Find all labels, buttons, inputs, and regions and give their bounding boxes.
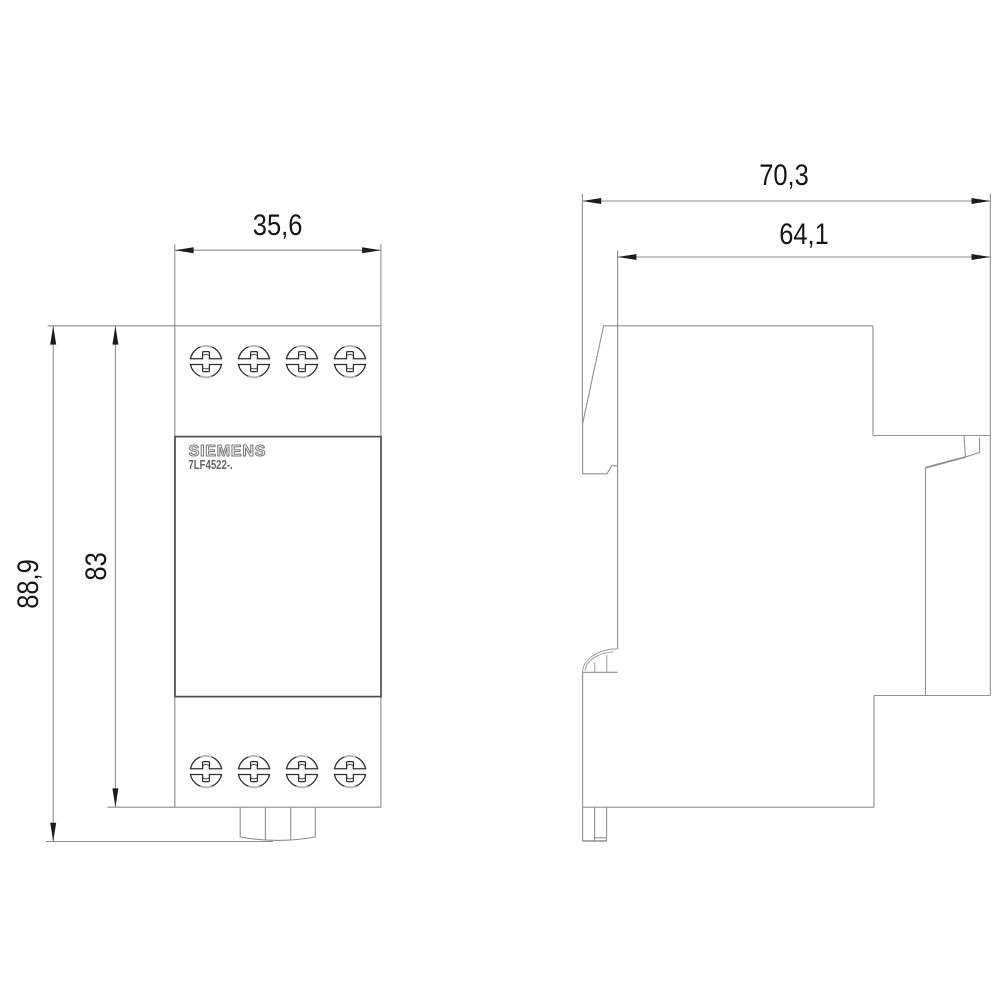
svg-text:SIEMENS: SIEMENS bbox=[189, 443, 267, 460]
svg-text:88,9: 88,9 bbox=[11, 559, 44, 609]
svg-text:64,1: 64,1 bbox=[779, 217, 829, 250]
svg-text:83: 83 bbox=[79, 552, 112, 580]
svg-text:7LF4522-.: 7LF4522-. bbox=[188, 459, 232, 473]
svg-text:70,3: 70,3 bbox=[759, 158, 809, 191]
svg-text:35,6: 35,6 bbox=[253, 208, 303, 241]
